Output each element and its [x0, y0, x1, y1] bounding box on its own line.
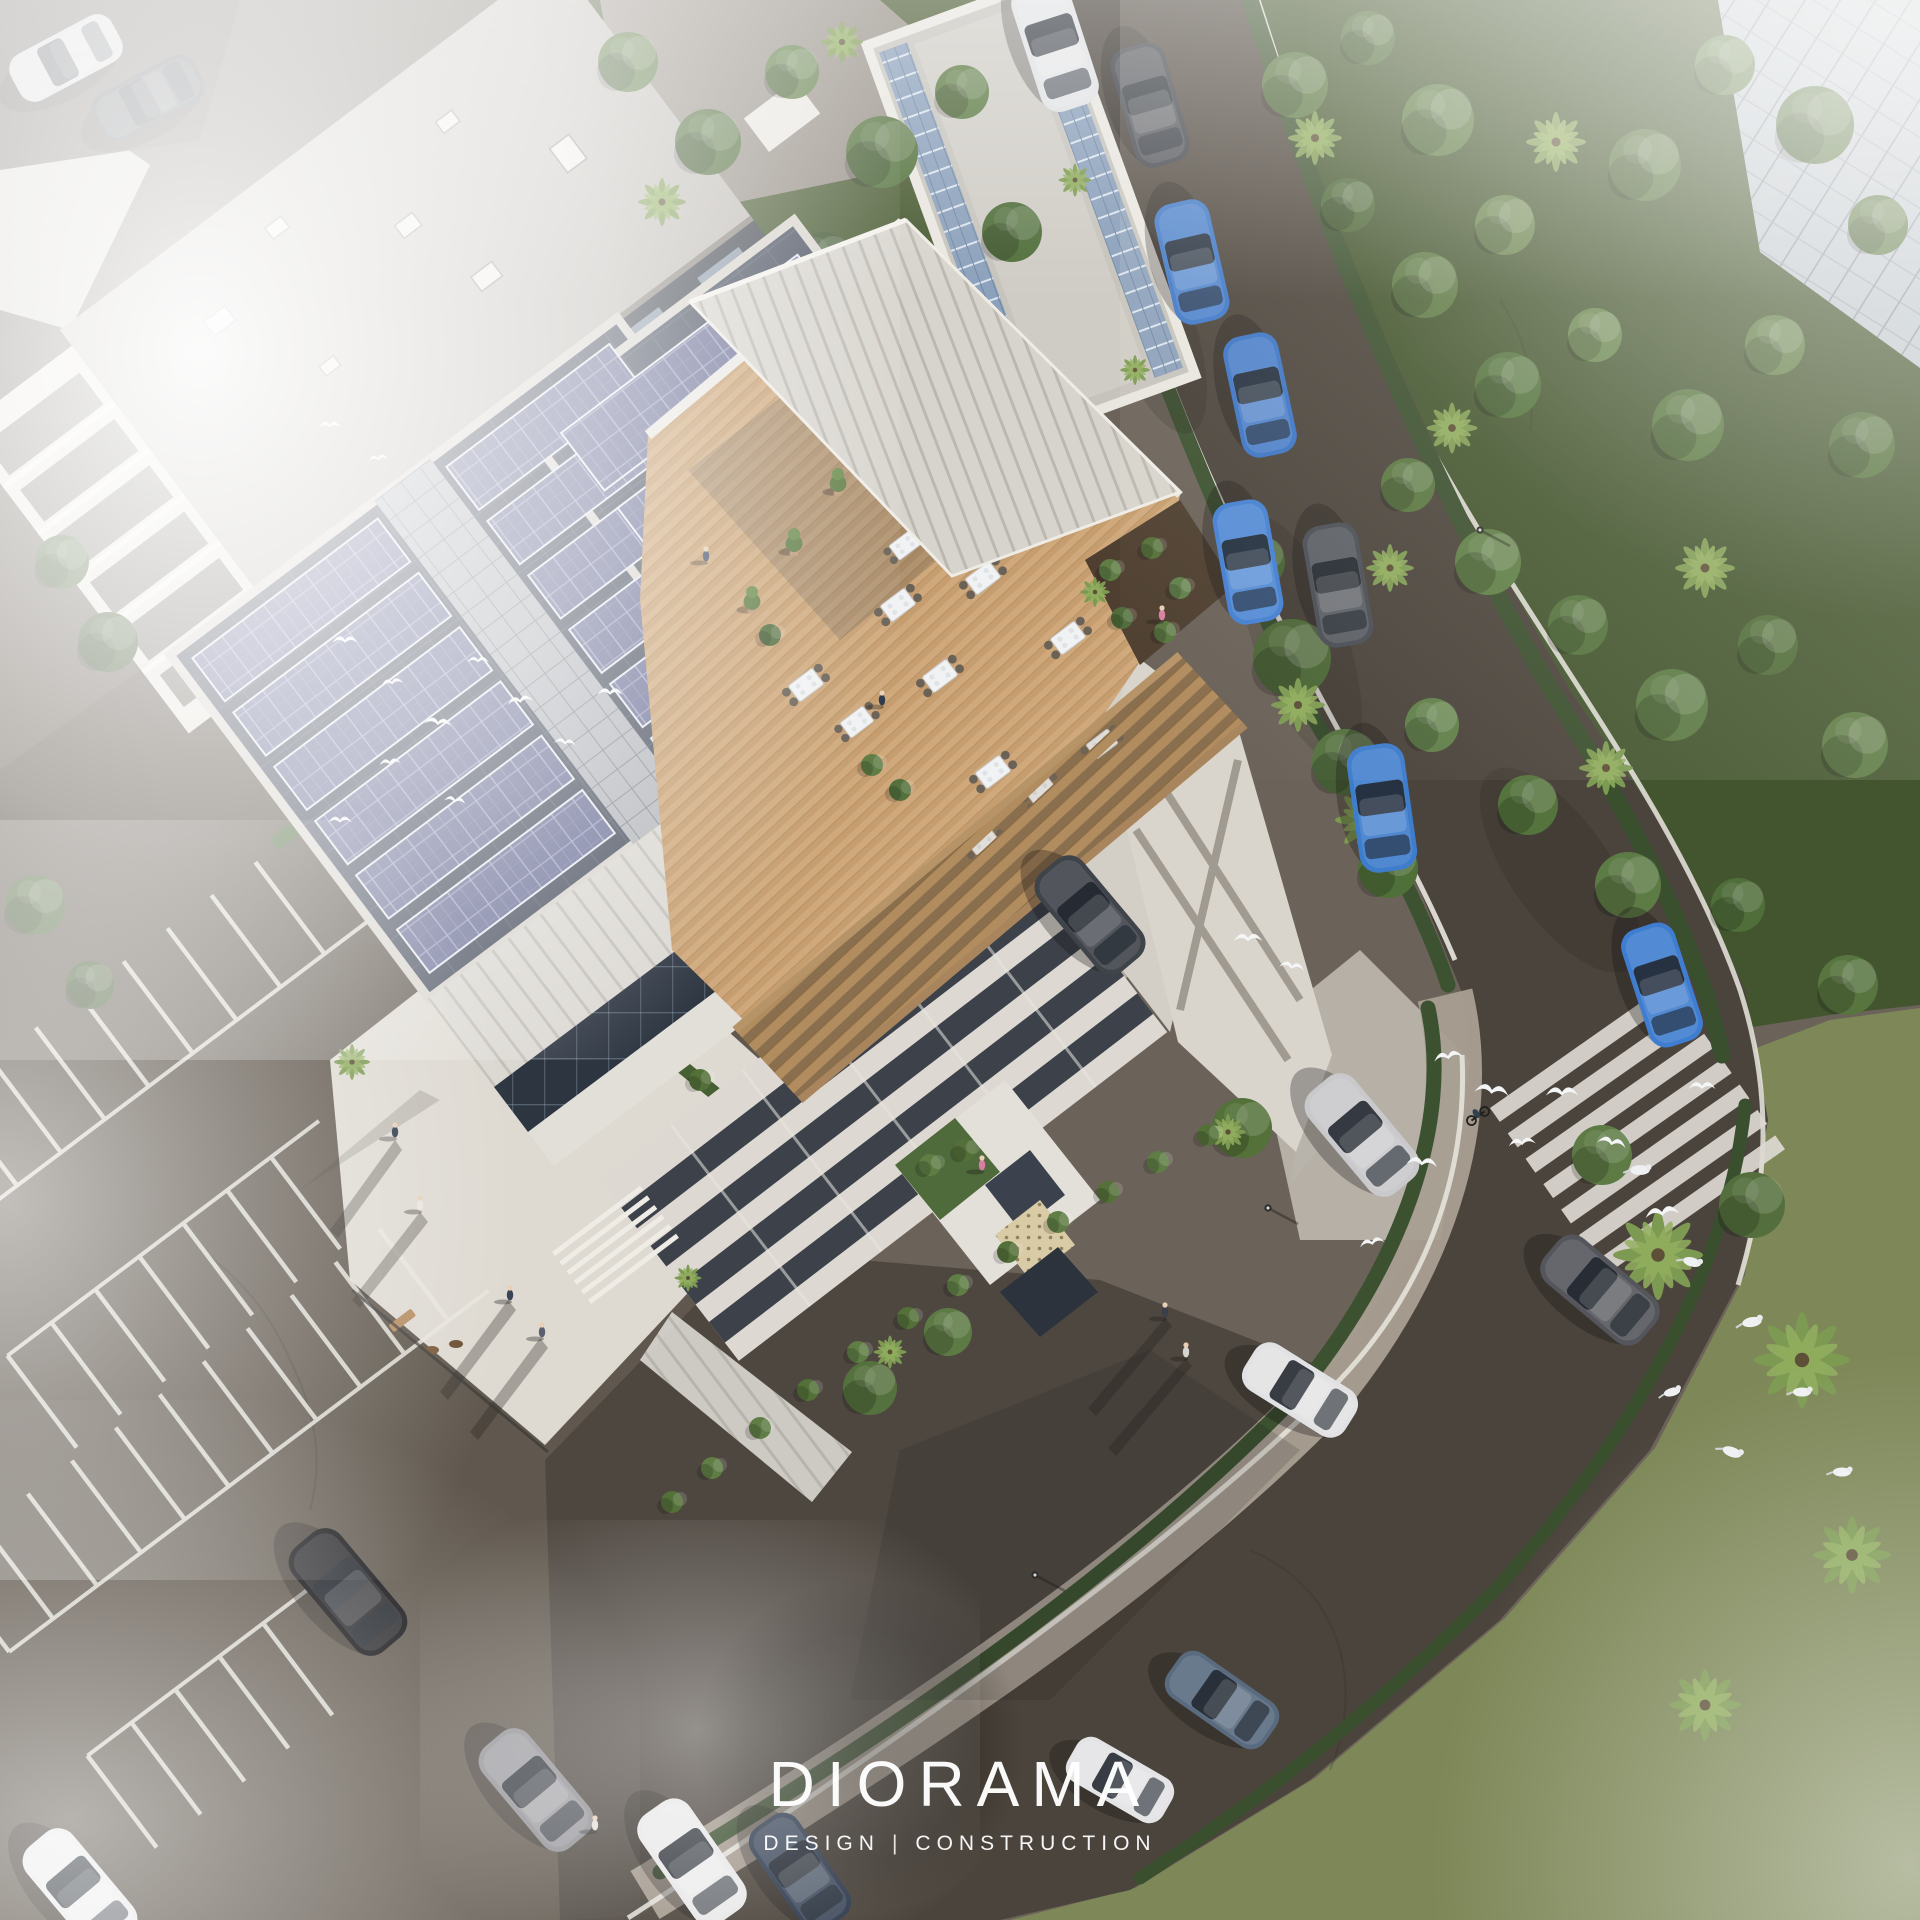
aerial-render: DIORAMA DESIGN|CONSTRUCTION — [0, 0, 1920, 1920]
fog-bottom-right — [1400, 1320, 1920, 1920]
scene — [0, 0, 1920, 1920]
brand-logo: DIORAMA — [763, 1752, 1156, 1816]
watermark: DIORAMA DESIGN|CONSTRUCTION — [763, 1752, 1156, 1856]
tagline-separator: | — [880, 1832, 915, 1855]
fog-top-right — [1300, 0, 1920, 620]
tagline-construction: CONSTRUCTION — [915, 1832, 1156, 1855]
brand-tagline: DESIGN|CONSTRUCTION — [763, 1832, 1156, 1856]
fog-bottom-center — [420, 1520, 980, 1920]
tagline-design: DESIGN — [763, 1832, 880, 1855]
